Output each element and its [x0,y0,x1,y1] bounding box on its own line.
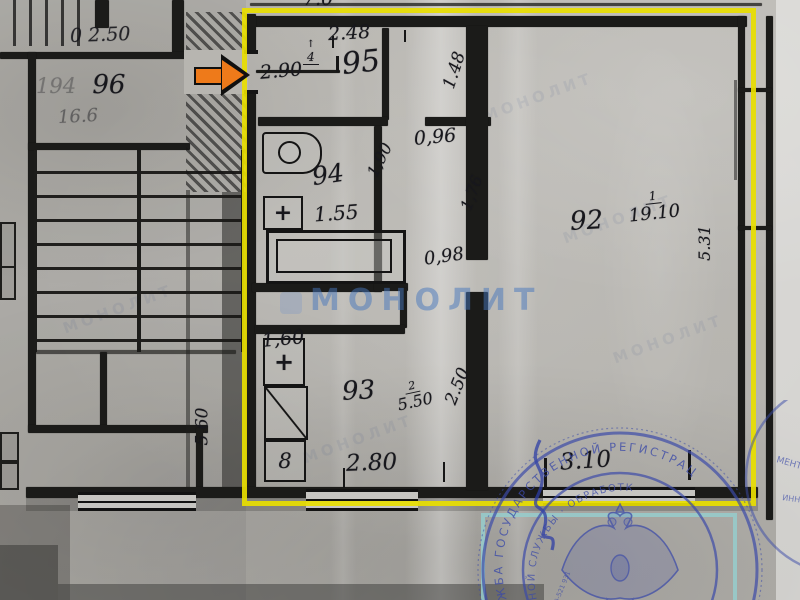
stairwell-top-dim: 0 2.50 [70,25,131,46]
radiator-box [0,222,16,268]
hatched-shared-wall [186,12,246,192]
stairwell-area: 16.6 [58,107,99,127]
side-stamp-line1: МЕНТС [775,455,800,473]
plan-number-prefix: 194 [36,74,76,98]
wall [100,352,107,428]
wall [28,425,208,433]
radiator-box [0,432,19,462]
shared-wall-line [186,190,190,488]
stairs-flight [34,150,140,352]
radiator-box [0,462,19,490]
dim-stair-side: 5.60 [195,387,212,467]
entrance-arrow-icon [194,54,252,96]
window-stair-room [78,492,196,511]
dark-corner-2 [0,545,58,600]
double-eagle-icon [562,504,678,600]
stairwell-plan-number: 194 96 [36,72,125,98]
side-stamp-line2: ИНН [782,493,800,504]
plan-number: 96 [92,70,125,100]
wall [172,0,184,58]
floorplan-scan: МОНОЛИТ МОНОЛИТ МОНОЛИТ МОНОЛИТ МОНОЛИТ [0,0,800,600]
radiator-box [0,266,16,300]
registration-stamp: СЛУЖБА ГОСУДАРСТВЕННОЙ РЕГИСТРАЦ РАЛЬНОЙ… [440,400,800,600]
stairs-landing-line [36,350,236,354]
wall [28,143,190,150]
